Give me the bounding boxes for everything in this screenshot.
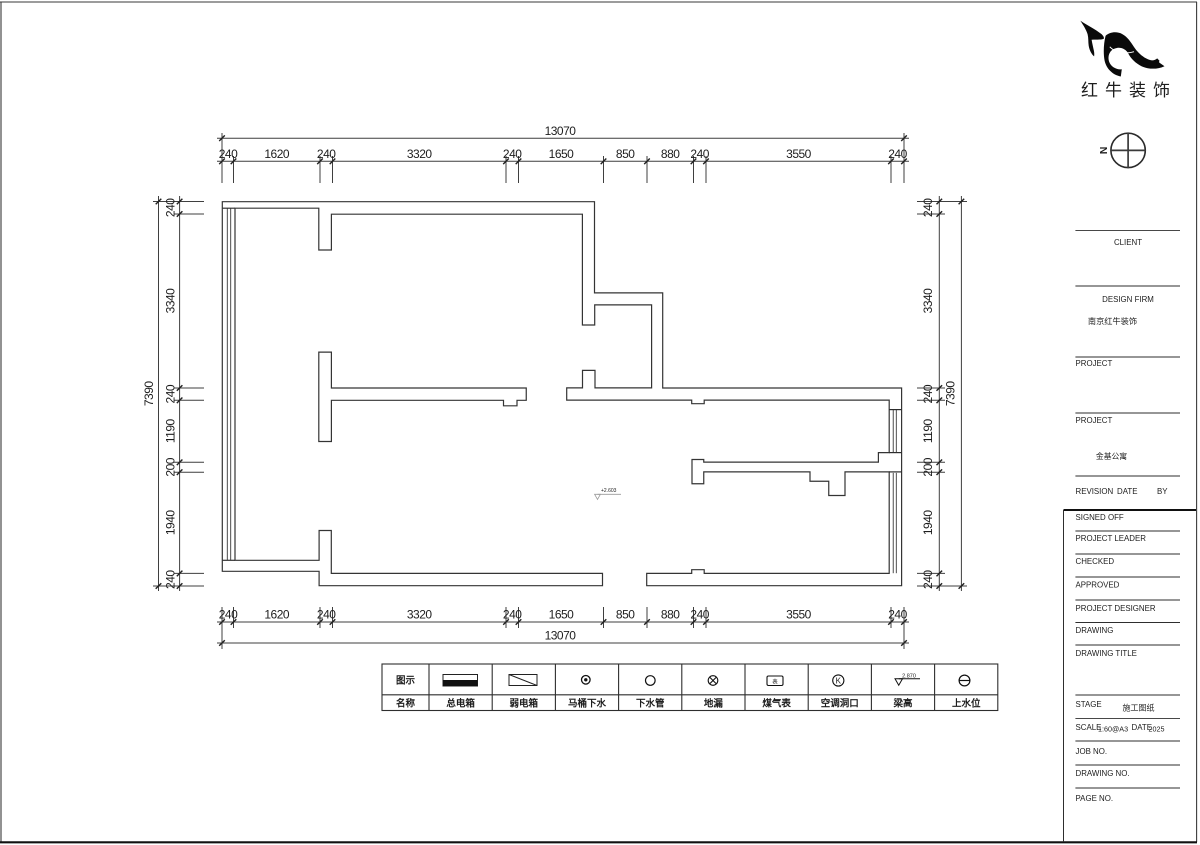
- svg-text:1620: 1620: [264, 147, 290, 161]
- svg-text:总电箱: 总电箱: [446, 697, 475, 709]
- svg-text:DATE: DATE: [1117, 487, 1137, 496]
- svg-text:850: 850: [616, 608, 635, 622]
- svg-text:240: 240: [164, 384, 178, 403]
- svg-text:240: 240: [164, 198, 178, 217]
- svg-text:弱电箱: 弱电箱: [510, 697, 539, 709]
- svg-text:3550: 3550: [786, 147, 812, 161]
- svg-text:CLIENT: CLIENT: [1114, 238, 1142, 247]
- svg-text:1650: 1650: [549, 608, 575, 622]
- svg-text:DRAWING: DRAWING: [1076, 626, 1114, 635]
- svg-text:上水位: 上水位: [952, 697, 981, 709]
- svg-text:3320: 3320: [407, 608, 433, 622]
- svg-text:240: 240: [503, 608, 522, 622]
- svg-text:1650: 1650: [549, 147, 575, 161]
- svg-text:图示: 图示: [396, 676, 416, 687]
- svg-text:1940: 1940: [164, 510, 178, 536]
- svg-text:200: 200: [164, 457, 178, 476]
- svg-text:PROJECT LEADER: PROJECT LEADER: [1076, 534, 1147, 543]
- svg-text:DRAWING NO.: DRAWING NO.: [1076, 769, 1130, 778]
- svg-text:240: 240: [921, 570, 935, 589]
- svg-text:JOB NO.: JOB NO.: [1076, 747, 1108, 756]
- svg-text:3320: 3320: [407, 147, 433, 161]
- svg-text:200: 200: [921, 457, 935, 476]
- svg-text:880: 880: [661, 147, 680, 161]
- svg-text:240: 240: [503, 147, 522, 161]
- svg-text:240: 240: [317, 608, 336, 622]
- svg-text:1190: 1190: [921, 418, 935, 443]
- svg-text:施工图纸: 施工图纸: [1123, 703, 1155, 713]
- svg-text:3340: 3340: [164, 288, 178, 314]
- svg-text:SIGNED OFF: SIGNED OFF: [1076, 513, 1124, 522]
- svg-text:PROJECT: PROJECT: [1076, 416, 1113, 425]
- svg-text:DESIGN FIRM: DESIGN FIRM: [1102, 295, 1154, 304]
- svg-text:南京红牛装饰: 南京红牛装饰: [1088, 316, 1137, 326]
- svg-text:表: 表: [772, 678, 778, 686]
- svg-text:240: 240: [219, 608, 238, 622]
- svg-text:7390: 7390: [944, 381, 958, 407]
- svg-text:下水管: 下水管: [636, 697, 665, 709]
- svg-text:名称: 名称: [396, 697, 416, 709]
- svg-text:240: 240: [888, 608, 907, 622]
- svg-text:240: 240: [921, 384, 935, 403]
- svg-text:CHECKED: CHECKED: [1076, 557, 1115, 566]
- svg-text:金基公寓: 金基公寓: [1096, 451, 1127, 461]
- svg-text:马桶下水: 马桶下水: [568, 697, 607, 709]
- svg-text:240: 240: [164, 570, 178, 589]
- svg-text:850: 850: [616, 147, 635, 161]
- svg-text:13070: 13070: [545, 124, 577, 138]
- svg-text:PROJECT DESIGNER: PROJECT DESIGNER: [1076, 604, 1156, 613]
- svg-text:3550: 3550: [786, 608, 812, 622]
- svg-text:BY: BY: [1157, 487, 1168, 496]
- svg-text:1:60@A3: 1:60@A3: [1098, 725, 1128, 734]
- svg-text:煤气表: 煤气表: [762, 697, 791, 709]
- svg-text:7390: 7390: [142, 381, 156, 407]
- svg-text:1620: 1620: [264, 608, 290, 622]
- svg-text:空调洞口: 空调洞口: [821, 697, 859, 709]
- svg-text:240: 240: [690, 608, 709, 622]
- svg-text:N: N: [1097, 147, 1109, 155]
- svg-text:3340: 3340: [921, 288, 935, 314]
- svg-text:240: 240: [888, 147, 907, 161]
- svg-text:+2.603: +2.603: [601, 488, 617, 494]
- svg-text:K: K: [836, 677, 842, 686]
- svg-text:880: 880: [661, 608, 680, 622]
- svg-text:PROJECT: PROJECT: [1076, 359, 1113, 368]
- svg-text:240: 240: [690, 147, 709, 161]
- svg-text:REVISION: REVISION: [1076, 487, 1114, 496]
- svg-text:1190: 1190: [164, 418, 178, 443]
- svg-text:240: 240: [921, 198, 935, 217]
- svg-text:地漏: 地漏: [704, 697, 724, 709]
- svg-text:240: 240: [219, 147, 238, 161]
- svg-text:梁高: 梁高: [892, 697, 913, 709]
- svg-text:1940: 1940: [921, 510, 935, 536]
- svg-text:DRAWING TITLE: DRAWING TITLE: [1076, 649, 1137, 658]
- svg-text:2.870: 2.870: [902, 674, 916, 680]
- svg-text:13070: 13070: [545, 629, 577, 643]
- svg-text:APPROVED: APPROVED: [1076, 581, 1120, 590]
- svg-text:PAGE NO.: PAGE NO.: [1076, 794, 1114, 803]
- svg-text:240: 240: [317, 147, 336, 161]
- svg-text:STAGE: STAGE: [1076, 700, 1102, 709]
- svg-text:红牛装饰: 红牛装饰: [1081, 81, 1177, 100]
- svg-text:2025: 2025: [1149, 725, 1165, 734]
